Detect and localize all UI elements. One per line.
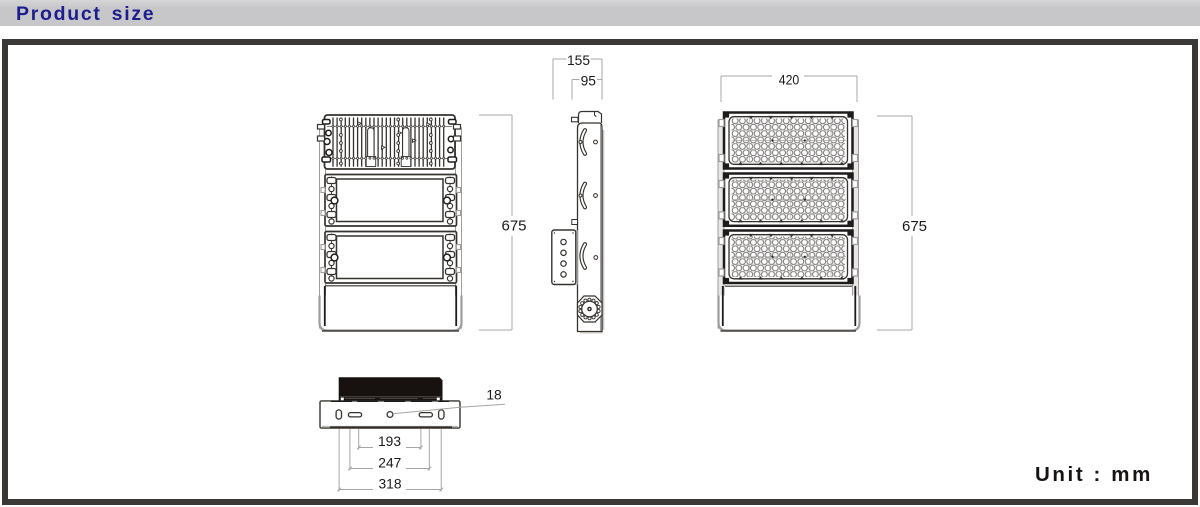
svg-text:675: 675 <box>902 218 927 235</box>
svg-text:675: 675 <box>501 217 526 234</box>
svg-text:318: 318 <box>378 477 401 492</box>
svg-text:420: 420 <box>779 71 800 87</box>
svg-text:247: 247 <box>378 455 401 470</box>
svg-text:193: 193 <box>378 434 401 449</box>
svg-text:18: 18 <box>486 387 502 402</box>
svg-text:95: 95 <box>581 73 597 88</box>
svg-text:155: 155 <box>567 53 590 68</box>
